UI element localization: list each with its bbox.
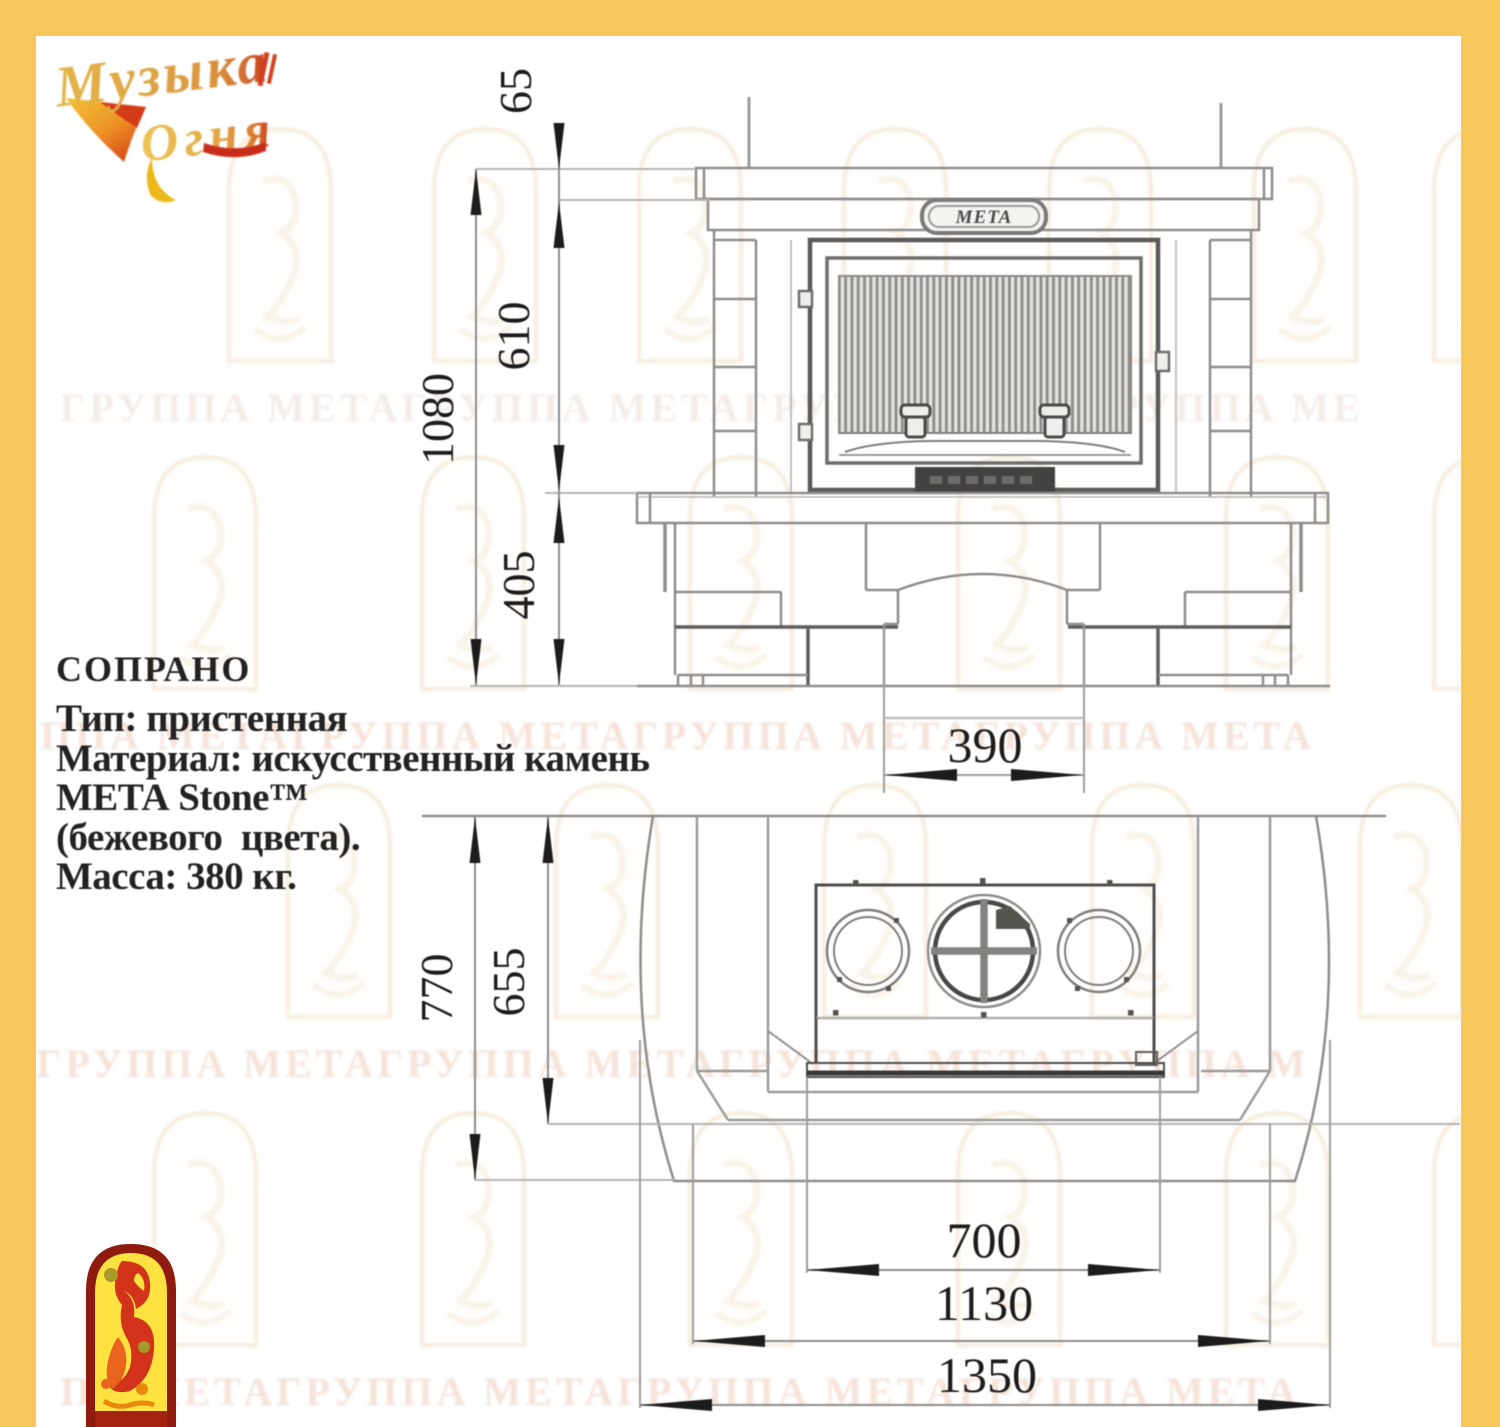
svg-text:Огня: Огня bbox=[137, 101, 273, 173]
svg-text:Музыка: Музыка bbox=[50, 30, 269, 120]
svg-text:1080: 1080 bbox=[412, 373, 463, 465]
svg-text:610: 610 bbox=[488, 302, 539, 371]
svg-text:655: 655 bbox=[483, 948, 534, 1017]
svg-text:390: 390 bbox=[948, 717, 1023, 773]
svg-text:1130: 1130 bbox=[935, 1275, 1033, 1331]
svg-text:65: 65 bbox=[490, 68, 541, 114]
svg-text:770: 770 bbox=[411, 954, 462, 1023]
svg-text:700: 700 bbox=[947, 1212, 1022, 1268]
svg-text:МЕТА: МЕТА bbox=[955, 207, 1013, 228]
svg-text:1350: 1350 bbox=[937, 1347, 1037, 1403]
svg-text:405: 405 bbox=[493, 551, 544, 620]
